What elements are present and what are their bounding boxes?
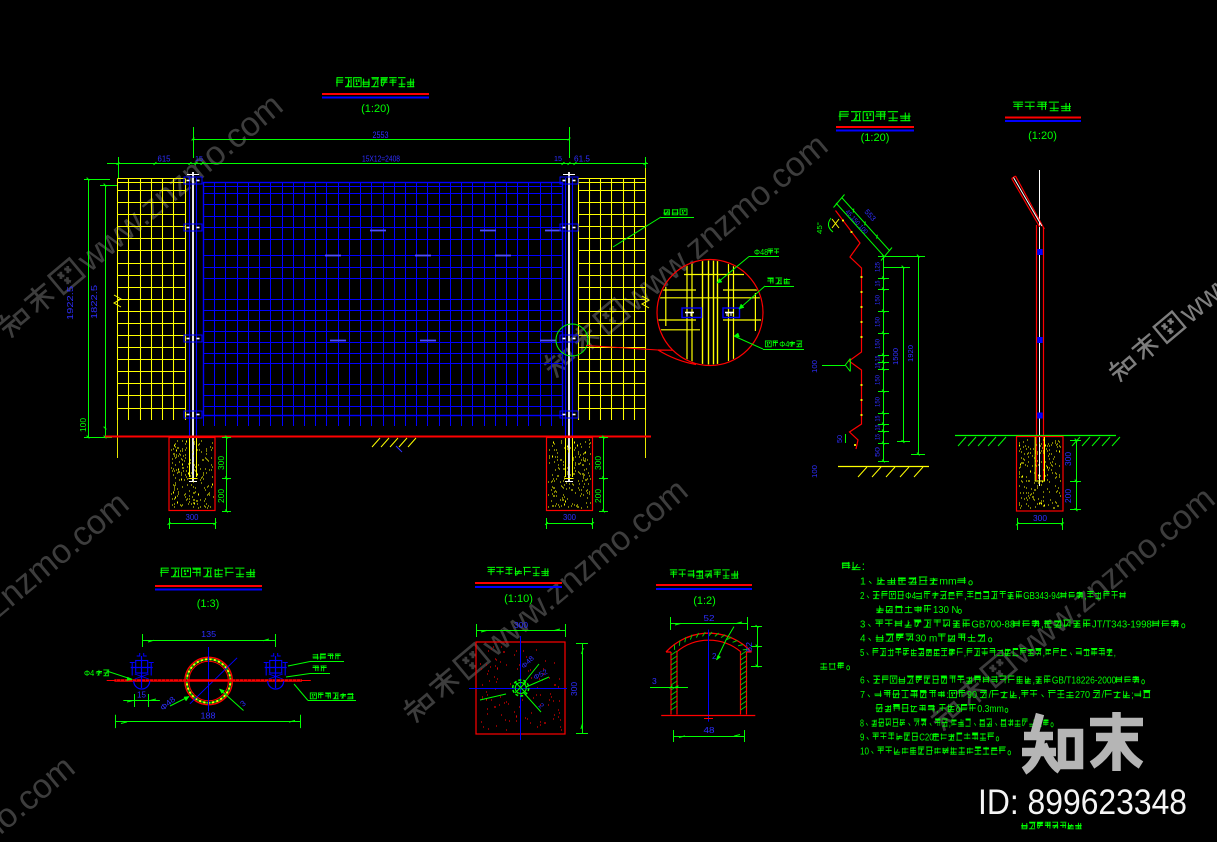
svg-text::: : xyxy=(946,689,949,701)
svg-text:(1:10): (1:10) xyxy=(504,593,533,605)
svg-text:2: 2 xyxy=(860,590,865,601)
svg-text:52: 52 xyxy=(704,613,715,623)
svg-text:GB700-88: GB700-88 xyxy=(971,619,1015,630)
svg-text::: : xyxy=(862,560,865,573)
svg-text:,: , xyxy=(1041,619,1044,630)
svg-text:ID: 899623348: ID: 899623348 xyxy=(978,783,1187,822)
svg-text:JT/T343-1998: JT/T343-1998 xyxy=(1092,619,1152,630)
svg-text:300: 300 xyxy=(514,620,528,630)
svg-text:3: 3 xyxy=(860,619,866,630)
svg-text:,: , xyxy=(964,590,966,601)
svg-text:0.3mm: 0.3mm xyxy=(977,703,1003,715)
svg-text:GB343-94: GB343-94 xyxy=(1023,590,1060,601)
svg-text:,: , xyxy=(964,647,966,658)
svg-text:(1:2): (1:2) xyxy=(693,595,716,607)
svg-text:4: 4 xyxy=(860,633,866,644)
svg-text:,: , xyxy=(949,717,951,729)
svg-text:6: 6 xyxy=(860,675,865,687)
svg-text:GB/T18226-2000: GB/T18226-2000 xyxy=(1052,675,1116,687)
svg-text:270: 270 xyxy=(1075,689,1091,701)
svg-text:C20: C20 xyxy=(919,731,933,742)
svg-text:300: 300 xyxy=(569,682,579,696)
svg-text:,: , xyxy=(936,703,938,715)
svg-text:mm: mm xyxy=(939,576,957,588)
svg-text:,: , xyxy=(1033,675,1035,687)
svg-text:/: / xyxy=(989,689,992,701)
svg-text:Φ4: Φ4 xyxy=(84,669,95,678)
svg-text:188: 188 xyxy=(201,711,216,721)
svg-text:,: , xyxy=(1043,647,1045,658)
svg-text:,: , xyxy=(1114,647,1116,658)
svg-text:62: 62 xyxy=(744,642,753,652)
svg-text:(1:3): (1:3) xyxy=(197,598,220,610)
svg-text:δ: δ xyxy=(956,703,961,715)
svg-text:1: 1 xyxy=(860,576,866,588)
svg-text:/: / xyxy=(1102,689,1105,701)
svg-text:135: 135 xyxy=(201,629,216,639)
svg-text:130 N: 130 N xyxy=(933,605,959,616)
svg-text:7: 7 xyxy=(860,689,865,701)
svg-text:2: 2 xyxy=(712,652,717,661)
svg-text:8: 8 xyxy=(860,717,864,729)
svg-text:9: 9 xyxy=(860,731,864,742)
svg-text:90: 90 xyxy=(967,689,978,701)
svg-text:Φ4: Φ4 xyxy=(905,590,916,601)
svg-text:15: 15 xyxy=(137,690,146,700)
svg-text:3: 3 xyxy=(652,676,657,686)
svg-text:5: 5 xyxy=(860,647,864,658)
svg-text:Φ48: Φ48 xyxy=(519,654,535,670)
svg-text:,: , xyxy=(1084,590,1086,601)
svg-text:,: , xyxy=(1018,689,1021,701)
svg-text:Φ48: Φ48 xyxy=(158,694,177,712)
svg-text:10: 10 xyxy=(860,746,869,757)
svg-text:;: ; xyxy=(1131,689,1134,701)
svg-text:30 m: 30 m xyxy=(915,633,937,644)
svg-text:48: 48 xyxy=(704,725,715,735)
